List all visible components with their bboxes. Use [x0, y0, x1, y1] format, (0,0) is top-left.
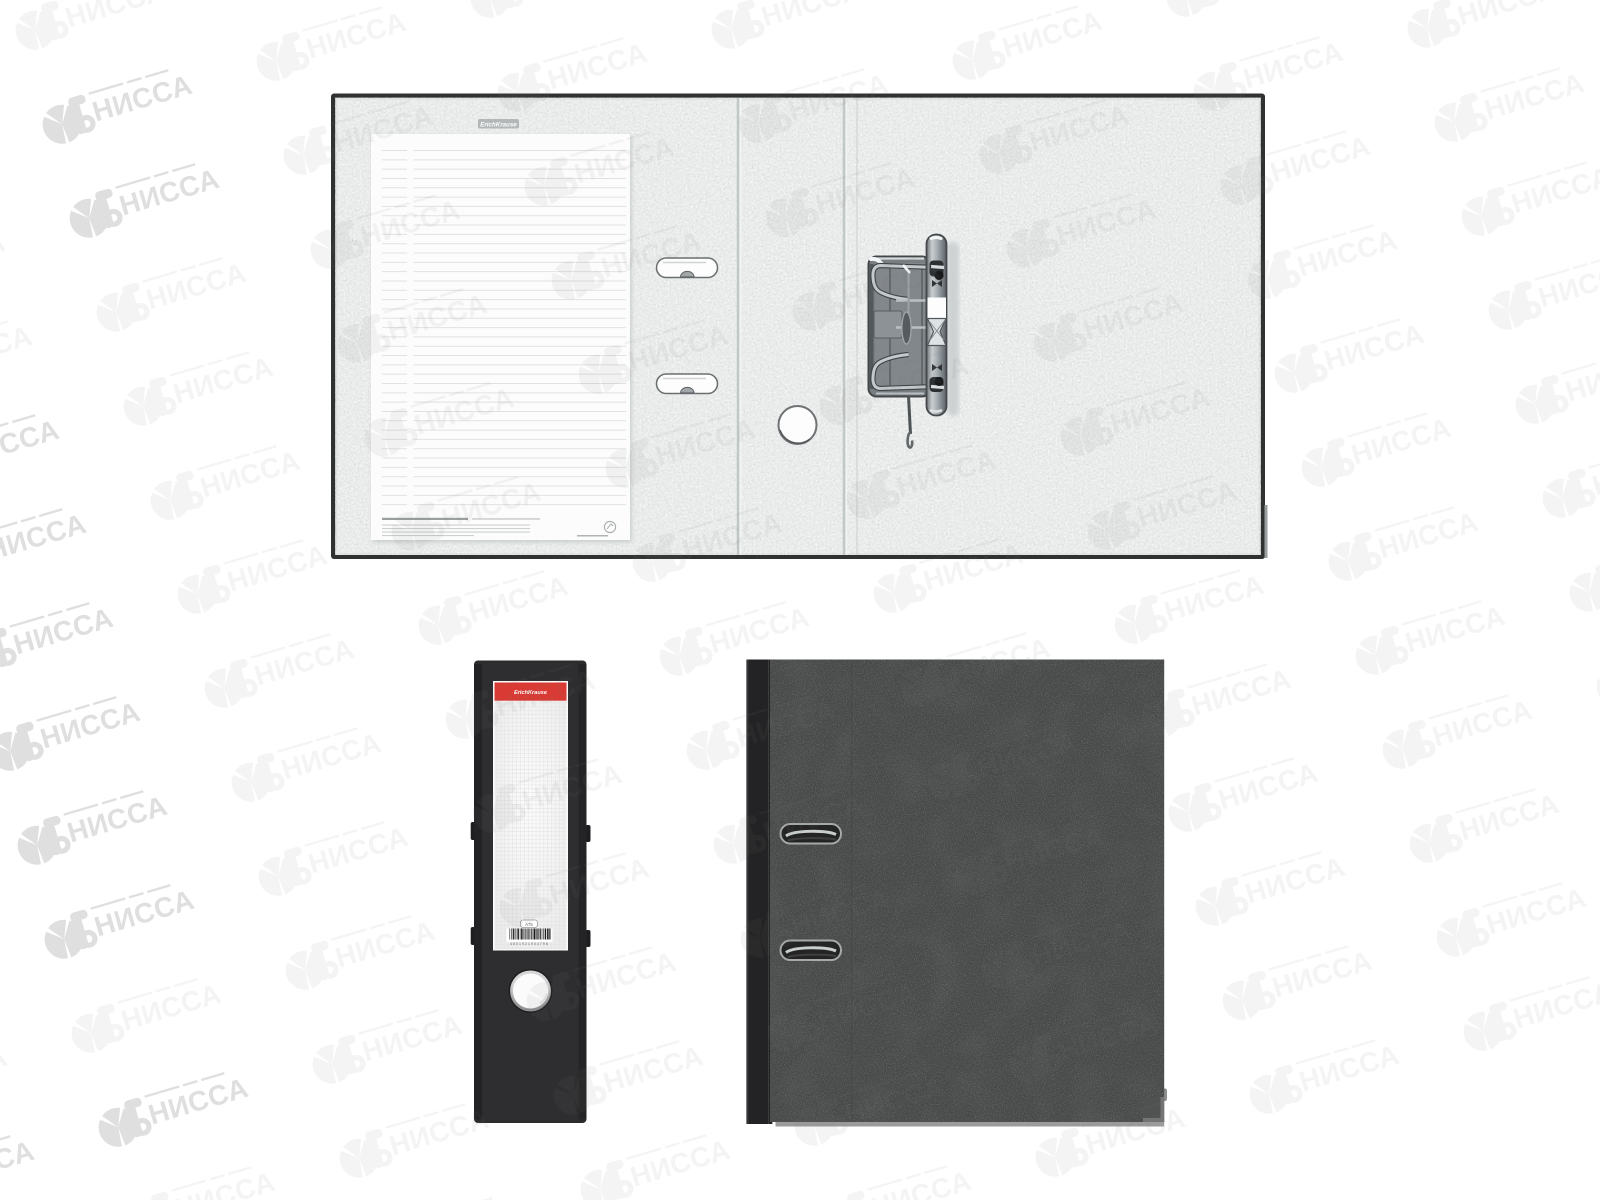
- svg-text:4601921904796: 4601921904796: [510, 942, 549, 946]
- svg-text:ErichKrause: ErichKrause: [480, 121, 517, 128]
